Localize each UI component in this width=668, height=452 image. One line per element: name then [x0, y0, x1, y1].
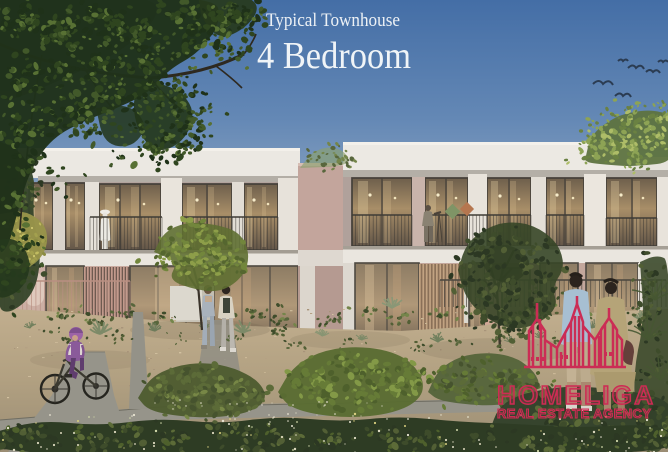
svg-text:Typical Townhouse: Typical Townhouse [266, 10, 400, 31]
svg-text:REAL ESTATE AGENCY: REAL ESTATE AGENCY [497, 406, 651, 421]
svg-text:4 Bedroom: 4 Bedroom [257, 35, 411, 77]
